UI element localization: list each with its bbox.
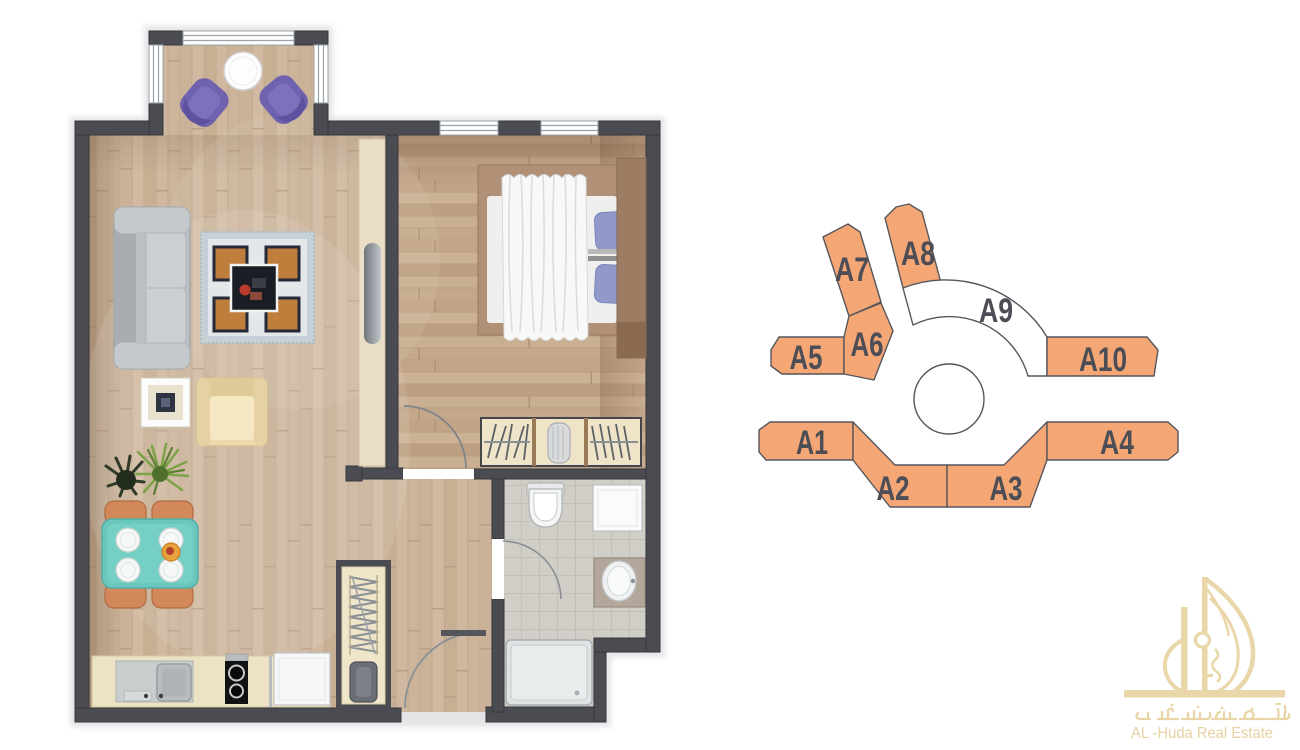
svg-text:A6: A6 [851, 326, 884, 364]
svg-text:A2: A2 [877, 470, 910, 508]
svg-text:A4: A4 [1100, 424, 1134, 462]
svg-text:A7: A7 [835, 251, 869, 289]
svg-text:A10: A10 [1079, 341, 1127, 379]
svg-text:A9: A9 [979, 292, 1013, 330]
svg-text:A5: A5 [790, 339, 823, 377]
svg-text:A3: A3 [990, 470, 1023, 508]
svg-text:A8: A8 [901, 235, 935, 273]
svg-text:A1: A1 [796, 424, 828, 462]
svg-text:AL -Huda Real Estate: AL -Huda Real Estate [1131, 725, 1273, 742]
